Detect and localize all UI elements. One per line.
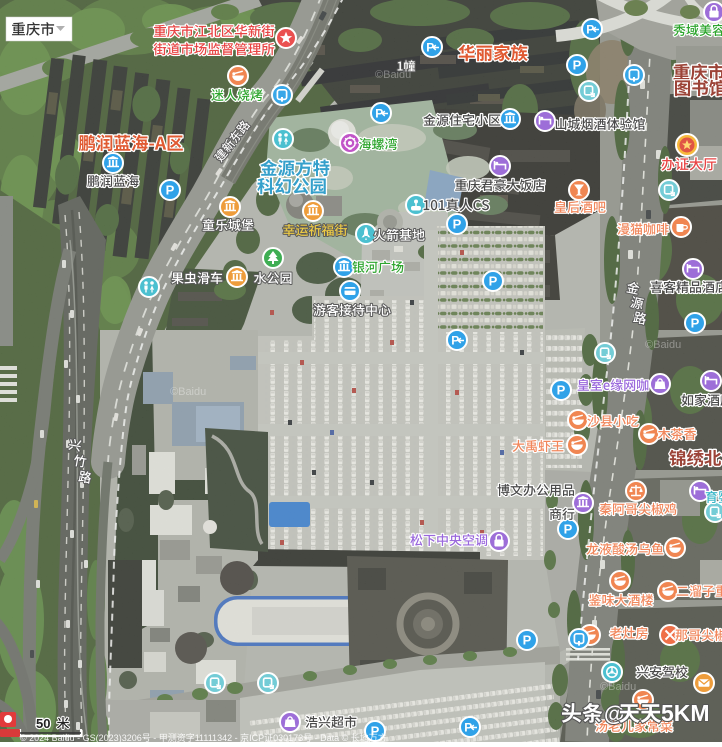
svg-text:©Baidu: ©Baidu	[170, 386, 206, 398]
svg-text:5KM: 5KM	[661, 700, 710, 726]
svg-text:50: 50	[36, 716, 50, 731]
svg-text:©Baidu: ©Baidu	[645, 339, 681, 351]
svg-text:© 2024 Baidu - GS(2023)3206号 -: © 2024 Baidu - GS(2023)3206号 - 甲测资字11111…	[20, 732, 387, 742]
svg-text:©Baidu: ©Baidu	[600, 681, 636, 693]
